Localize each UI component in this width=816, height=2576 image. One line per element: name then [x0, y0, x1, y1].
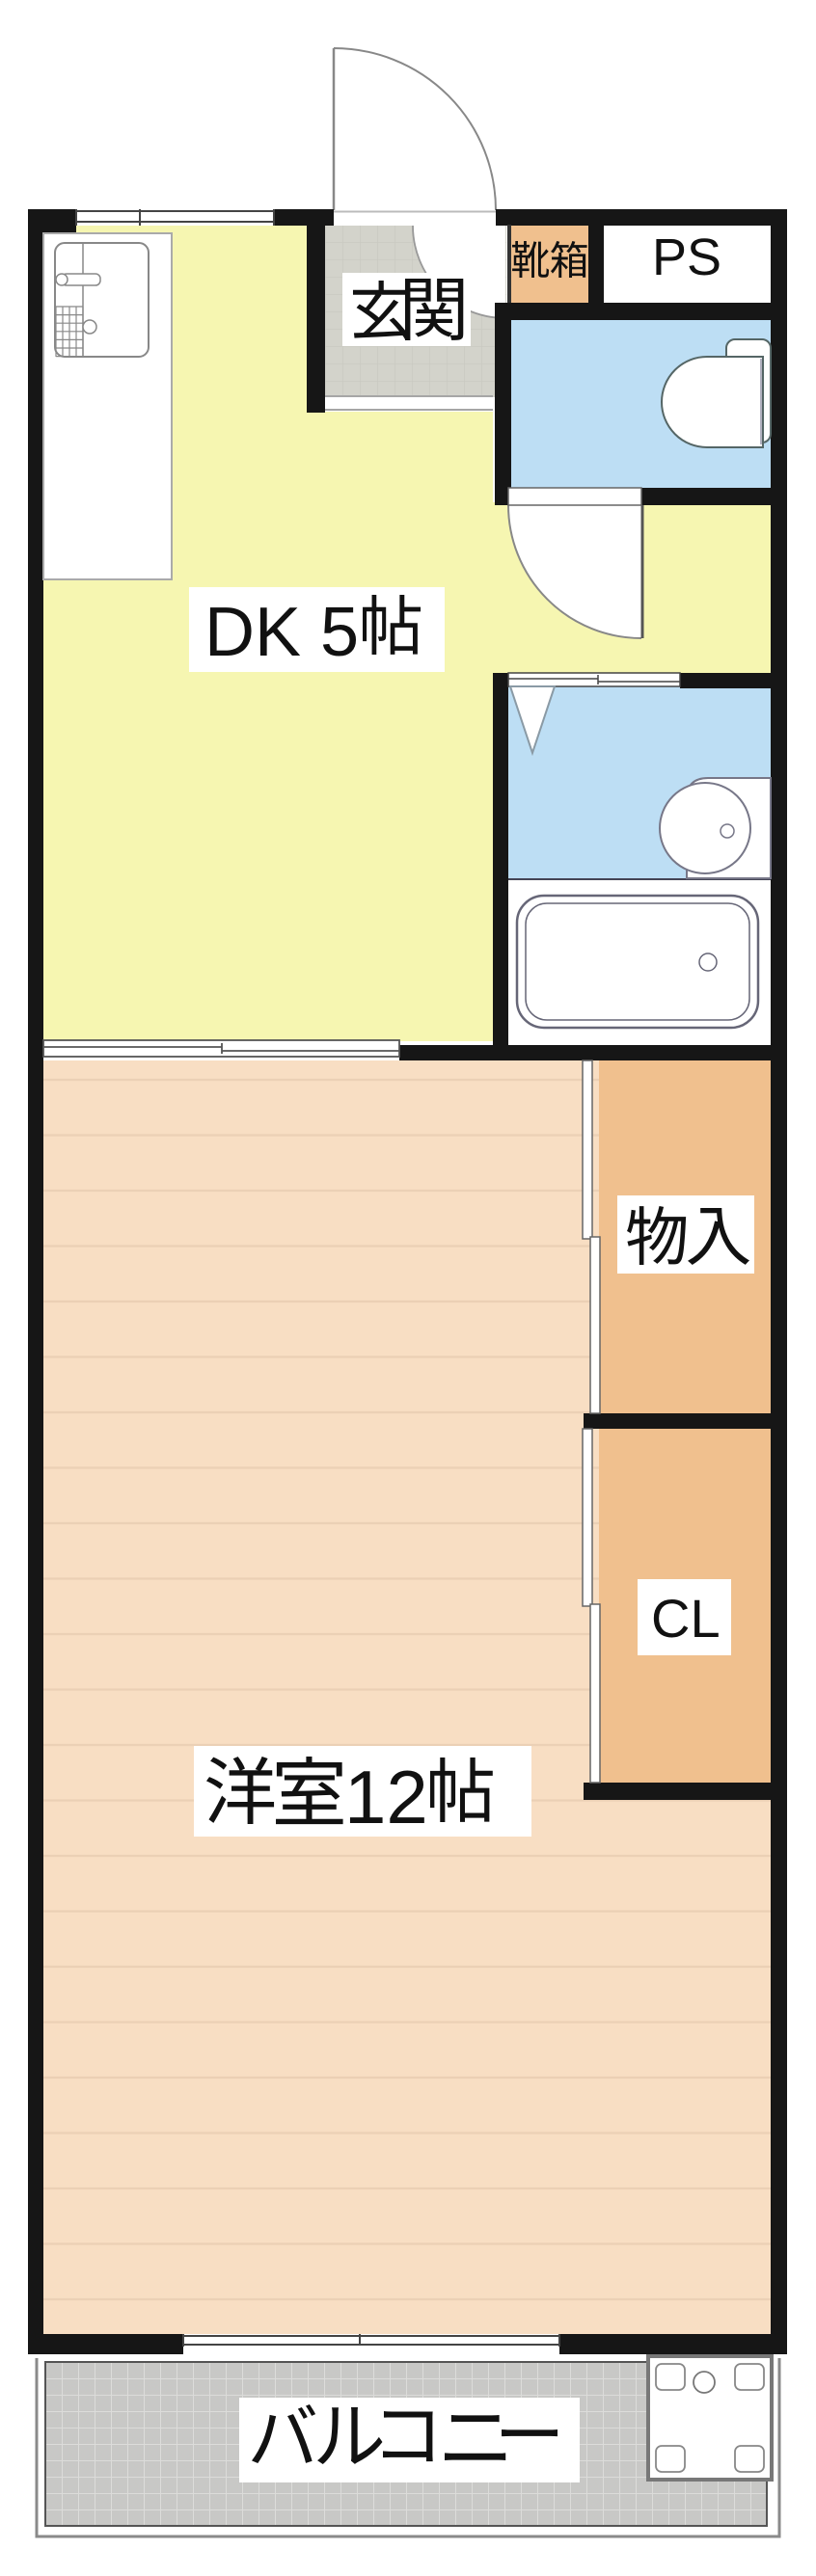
svg-text:12: 12: [344, 1755, 428, 1839]
svg-text:CL: CL: [651, 1588, 721, 1649]
svg-text:PS: PS: [652, 228, 721, 286]
svg-text:DK 5: DK 5: [204, 594, 359, 671]
